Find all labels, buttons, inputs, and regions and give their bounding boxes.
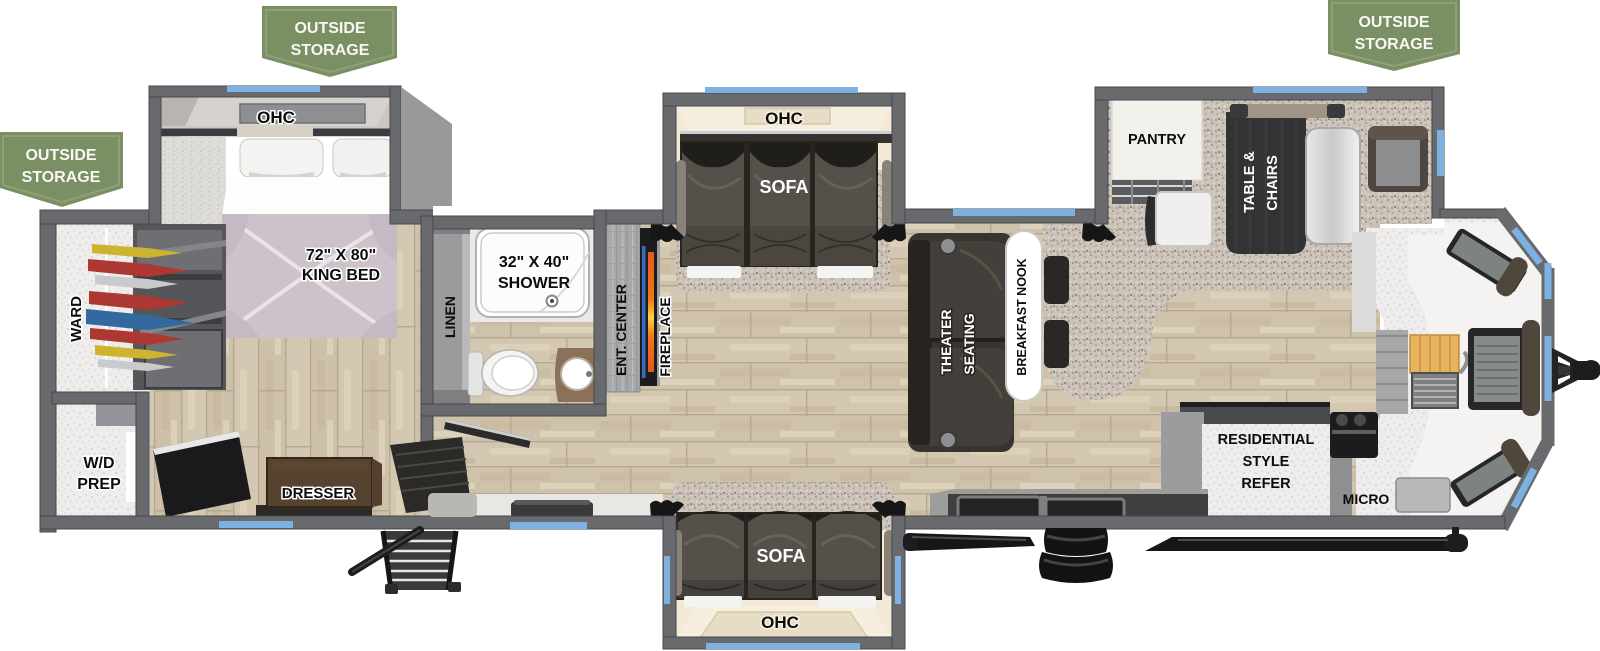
svg-text:DRESSER: DRESSER xyxy=(282,485,355,502)
svg-text:72" X 80": 72" X 80" xyxy=(306,247,376,264)
svg-text:RESIDENTIAL: RESIDENTIAL xyxy=(1218,432,1315,448)
svg-text:W/D: W/D xyxy=(83,455,114,472)
svg-text:32" X 40": 32" X 40" xyxy=(499,254,569,271)
svg-text:SHOWER: SHOWER xyxy=(498,275,570,292)
svg-text:OUTSIDE: OUTSIDE xyxy=(1358,14,1429,31)
svg-text:MICRO: MICRO xyxy=(1343,491,1390,507)
svg-text:OUTSIDE: OUTSIDE xyxy=(25,147,96,164)
svg-text:WARD: WARD xyxy=(68,296,85,342)
svg-text:THEATER: THEATER xyxy=(938,309,954,374)
svg-text:LINEN: LINEN xyxy=(442,296,458,338)
svg-text:PANTRY: PANTRY xyxy=(1128,132,1186,148)
svg-text:OHC: OHC xyxy=(257,108,295,127)
svg-text:KING BED: KING BED xyxy=(302,267,380,284)
svg-text:OHC: OHC xyxy=(761,613,799,632)
svg-text:REFER: REFER xyxy=(1241,476,1291,492)
svg-text:SEATING: SEATING xyxy=(961,313,977,374)
svg-text:STORAGE: STORAGE xyxy=(22,169,101,186)
svg-text:PREP: PREP xyxy=(77,476,121,493)
svg-text:SOFA: SOFA xyxy=(756,546,805,566)
svg-text:BREAKFAST NOOK: BREAKFAST NOOK xyxy=(1015,258,1029,375)
svg-text:OHC: OHC xyxy=(765,109,803,128)
svg-text:FIREPLACE: FIREPLACE xyxy=(657,297,673,376)
svg-text:ENT. CENTER: ENT. CENTER xyxy=(613,284,629,376)
svg-text:CHAIRS: CHAIRS xyxy=(1265,155,1281,211)
svg-text:STORAGE: STORAGE xyxy=(291,42,370,59)
svg-text:OUTSIDE: OUTSIDE xyxy=(294,20,365,37)
svg-text:STORAGE: STORAGE xyxy=(1355,36,1434,53)
svg-text:SOFA: SOFA xyxy=(759,177,808,197)
svg-text:TABLE &: TABLE & xyxy=(1242,151,1258,213)
svg-text:STYLE: STYLE xyxy=(1243,454,1290,470)
